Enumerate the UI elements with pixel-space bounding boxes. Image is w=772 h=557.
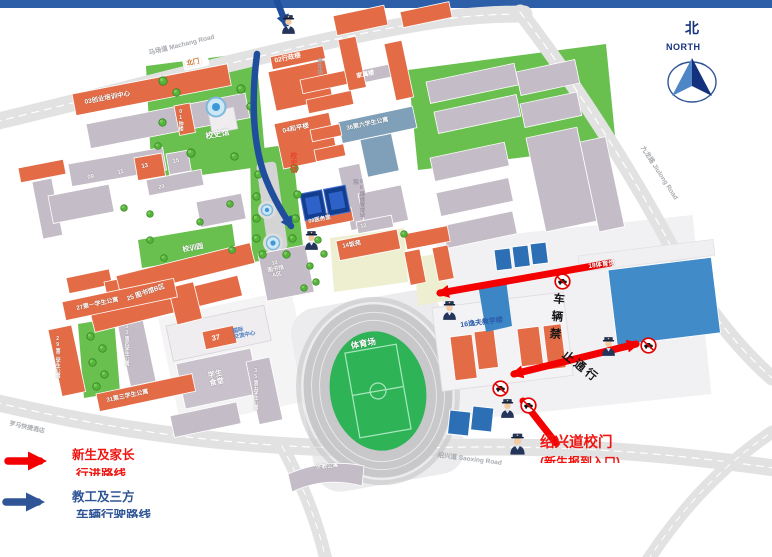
gym-18-building [608, 257, 720, 345]
dorm-33-label: 33第四学生公寓 [123, 324, 129, 388]
canteen-label: 学生 食堂 [207, 369, 225, 389]
library-a-label: 10 图书馆 A区 [266, 259, 286, 280]
bldg-11-label: 11 [117, 169, 124, 177]
legend-freshmen-sub-clipped: 行进路线 [76, 468, 166, 476]
legend-staff-sub-clipped: 车辆行驶路线 [76, 509, 176, 518]
gate-title-label: 绍兴道校门 [540, 435, 613, 451]
blue-route-entry-arrow [277, 1, 286, 24]
bldg-13 [134, 153, 166, 181]
bldg-09-label: 09 [87, 174, 95, 182]
no-car-icon [493, 381, 508, 396]
bldg-13-label: 13 [141, 163, 149, 171]
bldg-04 [274, 112, 338, 169]
gate-subtitle-clipped: (新生报到入口) [540, 456, 650, 463]
parking-label: 停车场 [316, 58, 322, 82]
bell-tower-label: 01钟楼 [177, 109, 183, 135]
bldg-37-label: 37 [211, 333, 221, 343]
no-car-icon [521, 398, 536, 413]
campus-map-page: 马场道 Machang Road 北门 九龙路 Jiulong Road 绍兴道… [0, 0, 772, 557]
no-car-icon [641, 338, 656, 353]
dorm-29-label: 29第二学生公寓 [54, 336, 60, 396]
legend-staff-label: 教工及三方 [72, 490, 135, 504]
no-car-icon [555, 274, 570, 289]
legend-freshmen-label: 新生及家长 [72, 448, 135, 462]
bldg-12-label: 12 [360, 223, 367, 230]
bldg-15-label: 15 [172, 158, 180, 166]
compass-north-en: NORTH [666, 42, 701, 52]
bldg-06-label: 06继续教育学院 [352, 179, 364, 223]
compass-icon [668, 58, 716, 102]
dorm-35-label: 35第五学生公寓 [252, 368, 258, 424]
bldg-23-label: 23 [158, 184, 165, 191]
history-hall-side-label: 校史馆 [289, 152, 297, 186]
compass-north-zh: 北 [685, 21, 699, 37]
